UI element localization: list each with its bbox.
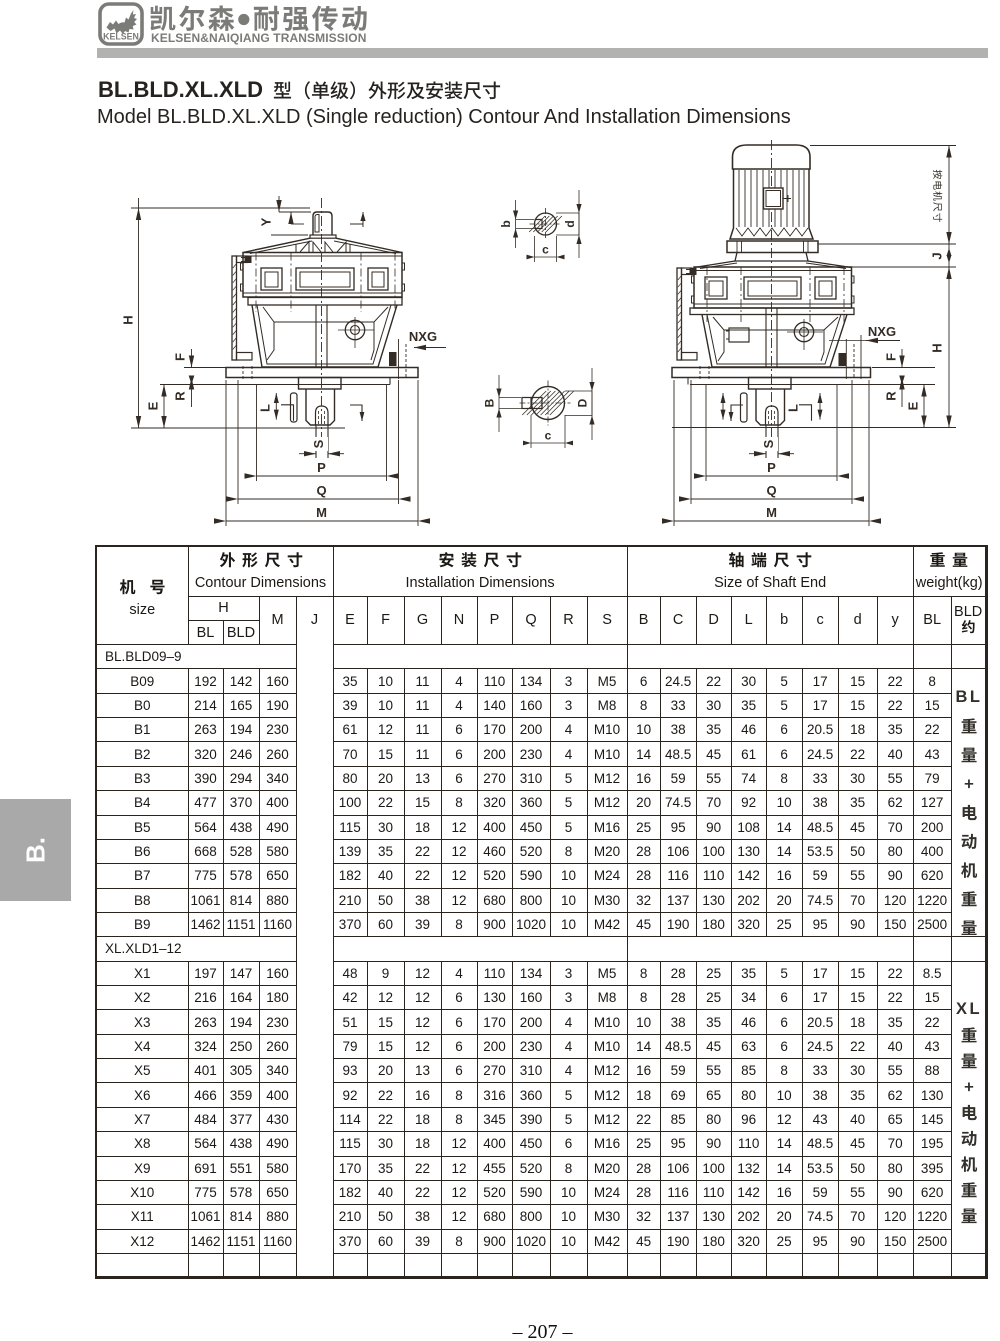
svg-text:P: P xyxy=(317,460,326,475)
svg-text:NXG: NXG xyxy=(868,324,896,339)
svg-text:M: M xyxy=(316,505,327,520)
svg-text:M: M xyxy=(766,505,777,520)
svg-text:BL.BLD.XL.XLD: BL.BLD.XL.XLD xyxy=(98,77,263,102)
svg-text:L: L xyxy=(785,404,800,412)
svg-text:b: b xyxy=(499,220,513,227)
svg-text:R: R xyxy=(172,391,187,401)
svg-text:H: H xyxy=(929,343,944,352)
svg-text:P: P xyxy=(767,460,776,475)
svg-text:L: L xyxy=(257,404,272,412)
svg-text:Q: Q xyxy=(316,483,326,498)
svg-text:R: R xyxy=(883,391,898,401)
svg-text:E: E xyxy=(905,401,920,410)
svg-text:KELSEN: KELSEN xyxy=(103,32,139,42)
svg-text:XL: XL xyxy=(956,1000,982,1018)
svg-text:NXG: NXG xyxy=(409,329,437,344)
svg-text:B: B xyxy=(483,398,497,407)
svg-text:F: F xyxy=(883,353,898,361)
svg-text:S: S xyxy=(761,439,776,448)
svg-text:S: S xyxy=(311,439,326,448)
svg-text:D: D xyxy=(576,398,590,407)
svg-text:c: c xyxy=(545,429,552,443)
svg-text:F: F xyxy=(172,353,187,361)
svg-text:H: H xyxy=(120,315,135,324)
svg-text:Q: Q xyxy=(766,483,776,498)
svg-text:E: E xyxy=(145,401,160,410)
svg-text:c: c xyxy=(542,243,549,257)
svg-text:Y: Y xyxy=(258,217,273,226)
svg-text:d: d xyxy=(563,220,577,227)
svg-text:J: J xyxy=(929,252,944,259)
svg-text:BL: BL xyxy=(955,688,982,706)
